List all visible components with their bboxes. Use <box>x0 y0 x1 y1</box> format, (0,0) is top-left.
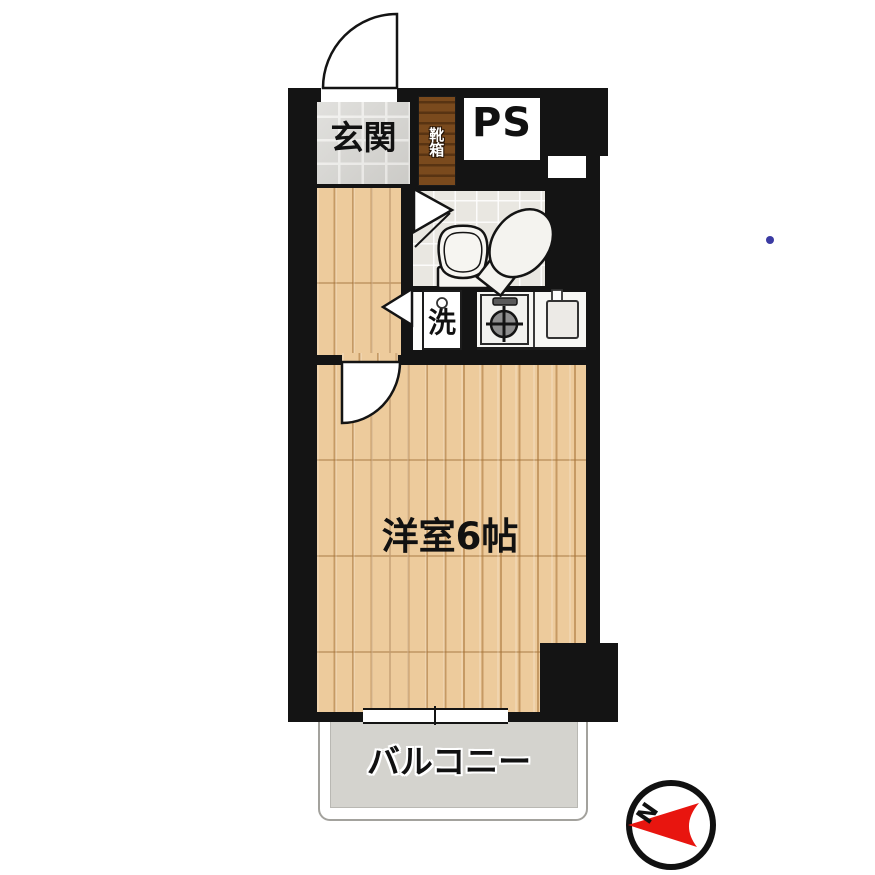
compass-north-label: N <box>632 798 664 829</box>
wall-hall-bath-divider <box>401 186 413 358</box>
pipe-space-label: PS <box>464 101 540 145</box>
bathroom-area <box>413 188 545 286</box>
balcony-label: バルコニー <box>318 744 580 780</box>
wall-left <box>288 186 317 722</box>
wall-notch <box>548 156 586 178</box>
entrance-door-arc <box>323 14 397 88</box>
compass-ring <box>629 783 713 867</box>
entrance-door-opening <box>321 88 397 103</box>
floorplan-canvas: N 玄関 靴箱 PS 洗 洋室6帖 バルコニー <box>0 0 875 875</box>
wall-under-kitchen <box>398 350 600 365</box>
counter-divider-line <box>533 292 535 347</box>
blue-dot-marker <box>766 236 774 244</box>
shoebox-label: 靴箱 <box>418 104 454 180</box>
window <box>363 708 508 724</box>
genkan-label: 玄関 <box>317 120 410 156</box>
compass: N <box>628 783 713 867</box>
main-room-label: 洋室6帖 <box>330 517 570 558</box>
wall-laundry-kitchen-divider <box>462 292 477 350</box>
compass-needle-icon <box>628 803 699 847</box>
wall-step-gap <box>600 156 608 188</box>
pillar-bottom-right <box>540 643 618 722</box>
door-opening-floor <box>342 353 398 365</box>
laundry-label: 洗 <box>422 308 462 339</box>
hallway-floor <box>317 188 401 355</box>
stove <box>480 294 529 345</box>
wall-bathroom-right <box>540 178 600 292</box>
window-center-tick <box>434 706 436 725</box>
